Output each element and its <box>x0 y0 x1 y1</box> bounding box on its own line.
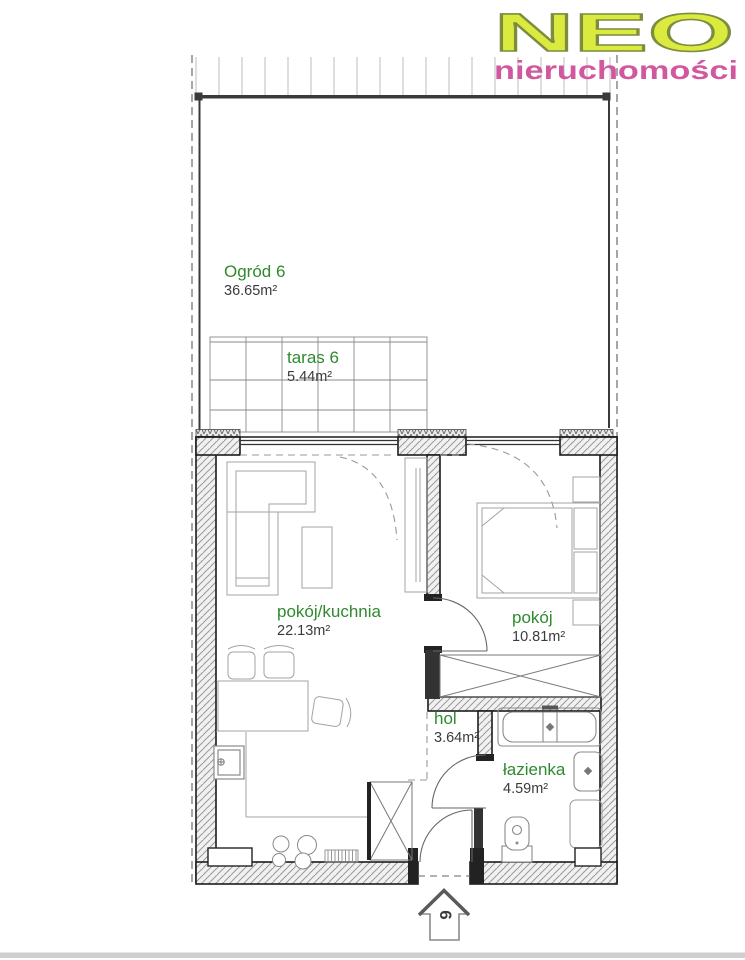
dish-rack <box>325 850 358 862</box>
living-cabinet <box>405 458 427 592</box>
unit-number-label: 6 <box>433 905 455 925</box>
room-name: hol <box>434 709 479 729</box>
room-label-taras: taras 6 5.44m² <box>287 348 339 386</box>
room-label-lazienka: łazienka 4.59m² <box>503 760 565 798</box>
room-area: 4.59m² <box>503 780 565 798</box>
wardrobe <box>440 655 601 697</box>
room-label-pokoj: pokój 10.81m² <box>512 608 565 646</box>
room-name: łazienka <box>503 760 565 780</box>
dining-set <box>218 646 351 732</box>
floor-plan <box>0 0 745 960</box>
room-name: taras 6 <box>287 348 339 368</box>
toilet <box>502 817 532 862</box>
coffee-table <box>302 527 332 588</box>
room-name: Ogród 6 <box>224 262 285 282</box>
room-label-hol: hol 3.64m² <box>434 709 479 747</box>
kitchen-sink <box>214 746 244 779</box>
room-label-pokoj-kuchnia: pokój/kuchnia 22.13m² <box>277 602 381 640</box>
dashed-swings <box>240 444 557 876</box>
bed <box>477 503 600 598</box>
floorplan-page: NEO nieruchomości Ogród 6 36.65m² taras … <box>0 0 745 960</box>
wall-stub-bands <box>196 430 613 438</box>
room-name: pokój/kuchnia <box>277 602 381 622</box>
room-area: 3.64m² <box>434 729 479 747</box>
room-area: 36.65m² <box>224 282 285 300</box>
room-label-ogrod: Ogród 6 36.65m² <box>224 262 285 300</box>
room-area: 5.44m² <box>287 368 339 386</box>
nightstand-top <box>573 477 600 502</box>
room-name: pokój <box>512 608 565 628</box>
logo: NEO nieruchomości <box>490 2 742 88</box>
logo-subtitle: nieruchomości <box>494 55 738 85</box>
kitchen-tall-cabinet <box>367 782 412 860</box>
washing-machine <box>570 800 602 848</box>
room-area: 22.13m² <box>277 622 381 640</box>
bathtub <box>498 706 601 747</box>
page-bottom-band <box>0 953 745 959</box>
logo-svg: NEO nieruchomości <box>490 2 742 88</box>
washbasin <box>574 752 602 791</box>
nightstand-bottom <box>573 600 600 625</box>
logo-name: NEO <box>494 3 734 63</box>
room-area: 10.81m² <box>512 628 565 646</box>
